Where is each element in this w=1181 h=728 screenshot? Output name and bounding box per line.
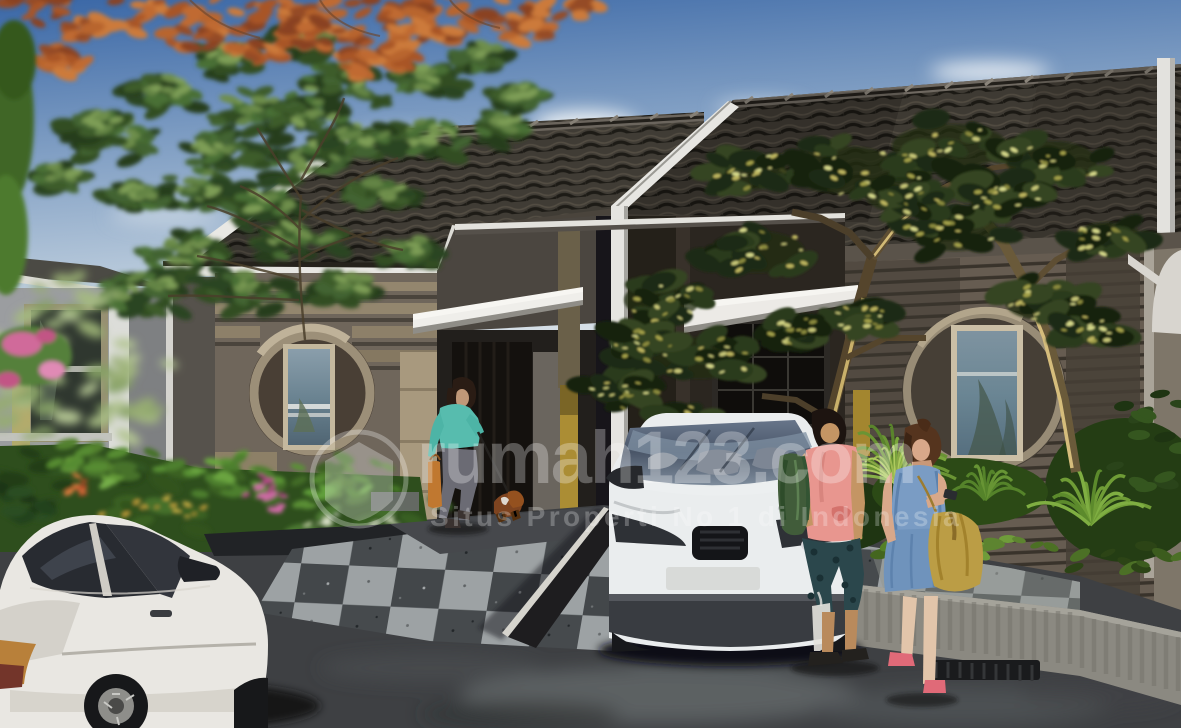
svg-text:rumah123.com: rumah123.com <box>417 416 915 499</box>
svg-text:Situs Properti No 1 di Indones: Situs Properti No 1 di Indonesia <box>430 501 962 532</box>
